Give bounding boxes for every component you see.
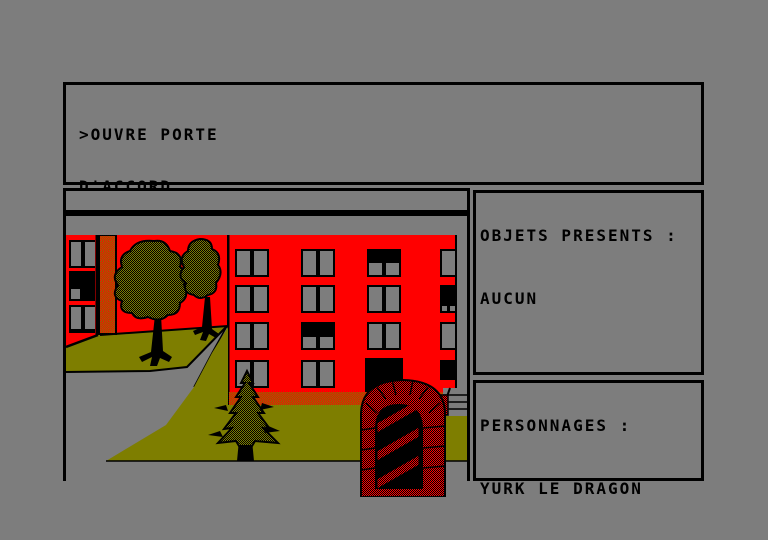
window-dark <box>440 360 456 380</box>
scene-illustration <box>66 235 467 497</box>
log-line: >OUVRE PORTE <box>79 126 701 143</box>
window-half-open <box>301 322 335 350</box>
window <box>235 322 269 350</box>
window <box>367 285 401 313</box>
scene-view <box>63 213 470 481</box>
building-right-edge <box>457 235 467 405</box>
command-log-panel: >OUVRE PORTE D'ACCORD >OUEST ISSUE(S) PR… <box>63 82 704 185</box>
characters-panel: PERSONNAGES : YURK LE DRAGON <box>473 380 704 481</box>
objects-panel: OBJETS PRESENTS : AUCUN <box>473 190 704 375</box>
window <box>301 360 335 388</box>
window <box>235 285 269 313</box>
window-dark <box>440 285 456 313</box>
left-building <box>66 235 98 347</box>
objects-panel-title: OBJETS PRESENTS : <box>480 228 701 244</box>
window <box>367 322 401 350</box>
window-half-open <box>367 249 401 277</box>
window <box>69 240 95 268</box>
window <box>301 249 335 277</box>
scene-title-bar: PETITS IMMEUBLES <box>63 188 470 213</box>
apartment-building <box>227 235 467 405</box>
window <box>235 249 269 277</box>
building-corner-strip <box>99 235 116 334</box>
game-screen: { "palette": { "background": "#7D7D7D", … <box>0 0 768 540</box>
character-item: YURK LE DRAGON <box>480 481 701 497</box>
characters-panel-title: PERSONNAGES : <box>480 418 701 434</box>
window-dark <box>69 271 95 301</box>
window <box>301 285 335 313</box>
window <box>440 249 456 277</box>
window <box>440 322 456 350</box>
gate-arch <box>361 380 445 497</box>
object-item: AUCUN <box>480 291 701 307</box>
window <box>69 305 95 333</box>
